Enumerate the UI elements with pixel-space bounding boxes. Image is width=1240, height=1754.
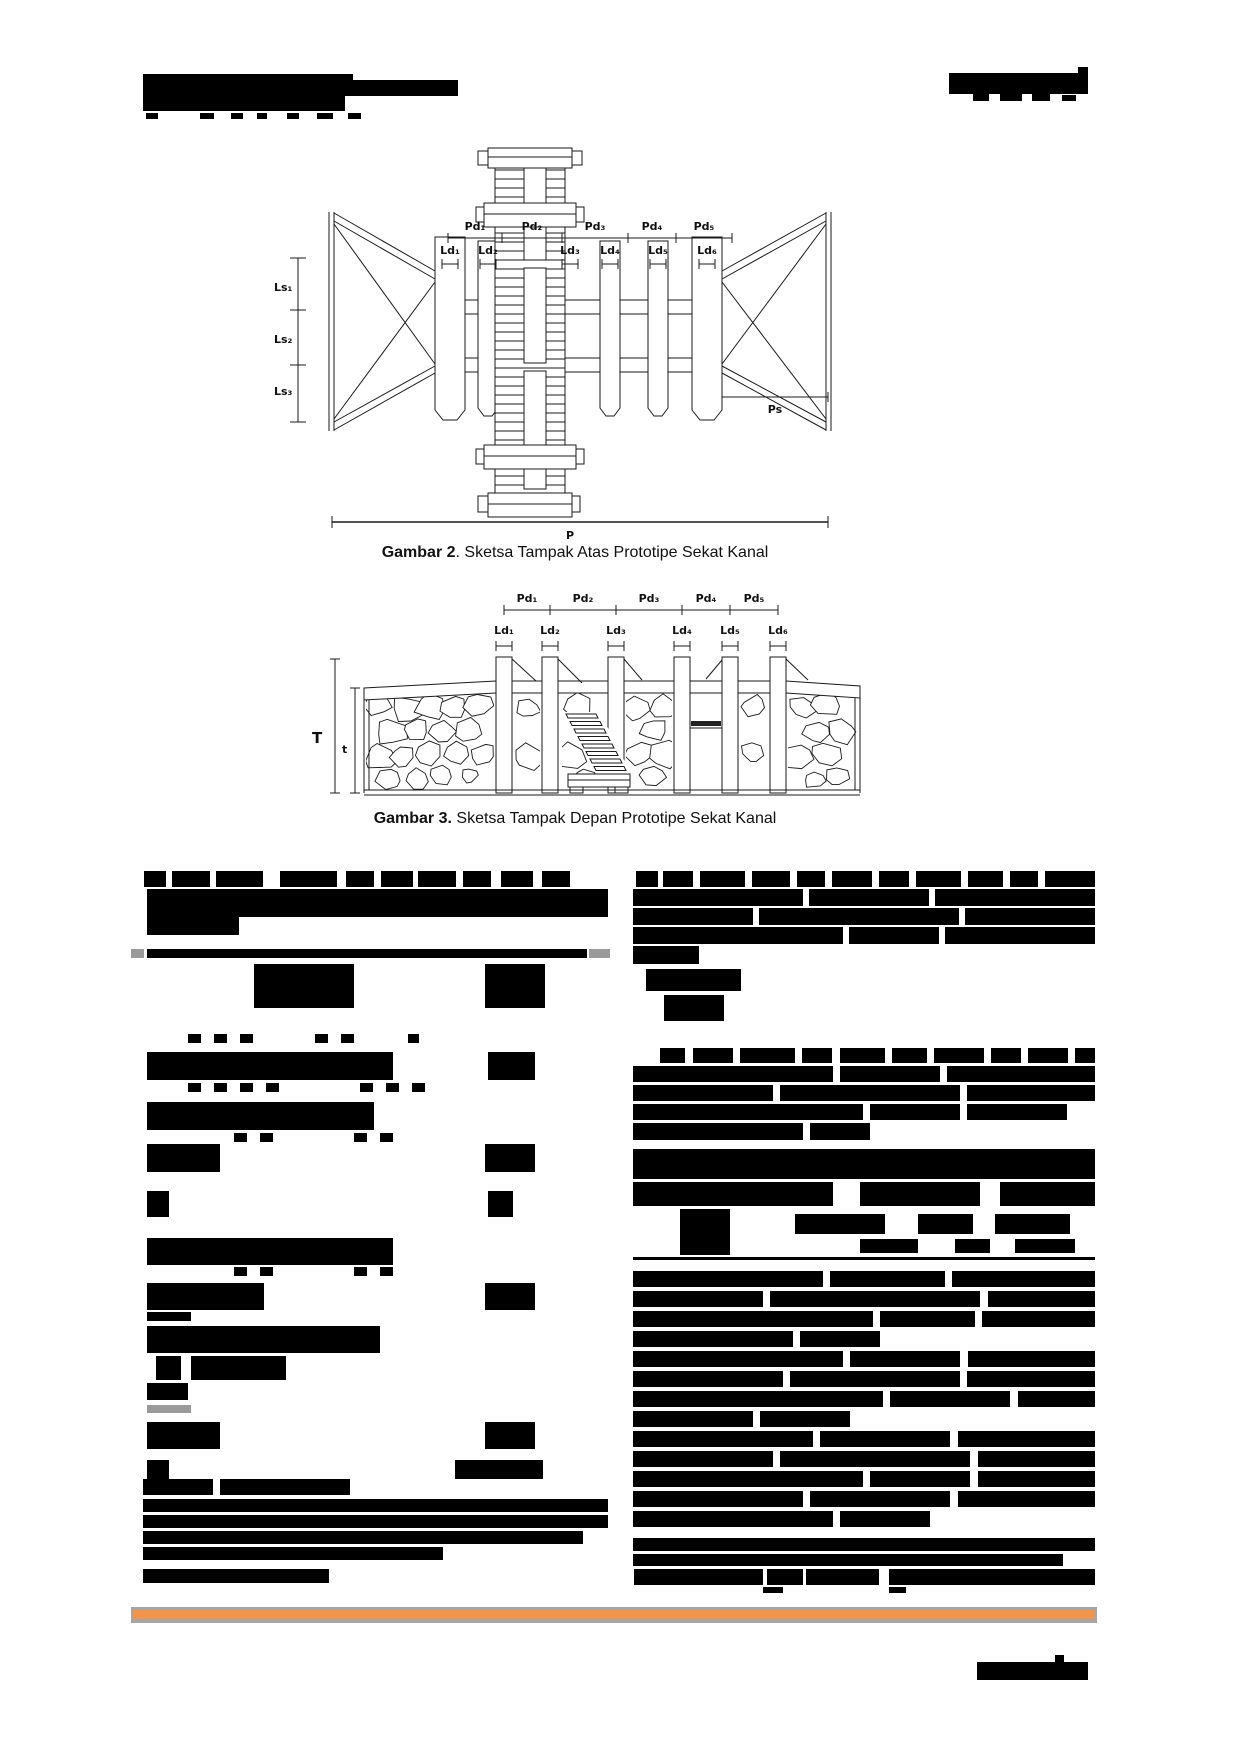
fig1-label-pd1: Pd₁ bbox=[465, 220, 486, 233]
stone bbox=[802, 722, 830, 742]
figure-front-view-sketch: T t Pd₁ Pd₂ Pd₃ Pd₄ Pd₅ Ld₁ Ld₂ Ld₃ Ld₄ … bbox=[270, 580, 870, 808]
redacted-text-bar bbox=[346, 871, 374, 887]
redacted-text-bar bbox=[700, 871, 745, 887]
stone bbox=[415, 741, 440, 766]
stone bbox=[639, 721, 665, 741]
stone bbox=[812, 743, 842, 766]
redacted-text-bar bbox=[354, 1133, 367, 1142]
redacted-text-bar bbox=[455, 1460, 543, 1479]
redacted-text-bar bbox=[967, 1104, 1067, 1120]
sketch-shape bbox=[570, 722, 602, 726]
redacted-text-bar bbox=[234, 1133, 247, 1142]
redacted-text-bar bbox=[1078, 67, 1088, 75]
redacted-text-bar bbox=[1062, 95, 1076, 101]
redacted-text-bar bbox=[589, 949, 610, 958]
redacted-text-bar bbox=[693, 1048, 733, 1063]
stone-panel bbox=[623, 694, 682, 786]
document-page: Ls₁ Ls₂ Ls₃ Pd₁ Pd₂ Pd₃ Pd₄ Pd₅ Ld₁ Ld₂ … bbox=[0, 0, 1240, 1754]
fig2-pd-dimension: Pd₁ Pd₂ Pd₃ Pd₄ Pd₅ bbox=[504, 592, 778, 615]
stone bbox=[428, 720, 457, 742]
redacted-text-bar bbox=[485, 1144, 535, 1172]
stone bbox=[623, 696, 650, 721]
redacted-text-bar bbox=[759, 908, 959, 925]
redacted-text-bar bbox=[955, 1239, 990, 1253]
redacted-text-bar bbox=[663, 871, 693, 887]
sketch-shape bbox=[578, 737, 610, 741]
stone-panel bbox=[741, 695, 765, 762]
redacted-text-bar bbox=[760, 1411, 850, 1427]
redacted-text-bar bbox=[879, 871, 909, 887]
redacted-text-bar bbox=[780, 1085, 960, 1101]
redacted-text-bar bbox=[770, 1291, 980, 1307]
redacted-text-bar bbox=[967, 1085, 1095, 1101]
fig1-label-ld5: Ld₅ bbox=[648, 244, 668, 257]
redacted-text-bar bbox=[488, 1191, 513, 1217]
redacted-text-bar bbox=[633, 889, 803, 906]
redacted-text-bar bbox=[806, 1569, 879, 1585]
fig1-label-ls3: Ls₃ bbox=[274, 385, 293, 398]
redacted-text-bar bbox=[341, 1034, 354, 1043]
redacted-text-bar bbox=[240, 1083, 253, 1092]
redacted-text-bar bbox=[849, 927, 939, 944]
sketch-shape bbox=[586, 752, 618, 756]
stone bbox=[829, 719, 856, 745]
redacted-text-bar bbox=[216, 871, 263, 887]
redacted-text-bar bbox=[978, 1471, 1095, 1487]
redacted-text-bar bbox=[880, 1311, 975, 1327]
redacted-text-bar bbox=[143, 1547, 443, 1560]
redacted-text-bar bbox=[147, 1326, 380, 1353]
redacted-text-bar bbox=[220, 1479, 350, 1495]
redacted-text-bar bbox=[408, 1034, 419, 1043]
stone-panel bbox=[364, 692, 494, 789]
stone bbox=[430, 765, 451, 785]
fig1-ls-dimension: Ls₁ Ls₂ Ls₃ bbox=[274, 258, 306, 422]
sketch-shape bbox=[574, 729, 606, 733]
redacted-text-bar bbox=[214, 1083, 227, 1092]
redacted-text-bar bbox=[977, 1662, 1088, 1680]
redacted-text-bar bbox=[254, 964, 354, 1008]
figure-3-caption: Gambar 3. Sketsa Tampak Depan Prototipe … bbox=[130, 810, 1020, 828]
redacted-text-bar bbox=[740, 1048, 795, 1063]
redacted-text-bar bbox=[840, 1066, 940, 1082]
fig2-label-ld3: Ld₃ bbox=[606, 624, 626, 637]
redacted-text-bar bbox=[348, 113, 361, 119]
redacted-text-bar bbox=[143, 1531, 583, 1544]
redacted-text-bar bbox=[147, 1312, 191, 1321]
redacted-text-bar bbox=[870, 1104, 960, 1120]
stone bbox=[741, 695, 765, 717]
sketch-shape bbox=[582, 744, 614, 748]
redacted-text-bar bbox=[633, 1471, 863, 1487]
redacted-text-bar bbox=[752, 871, 790, 887]
redacted-text-bar bbox=[790, 1371, 960, 1387]
redacted-text-bar bbox=[860, 1239, 918, 1253]
redacted-text-bar bbox=[918, 1214, 973, 1234]
redacted-text-bar bbox=[188, 1034, 201, 1043]
redacted-text-bar bbox=[1018, 1391, 1095, 1407]
stone bbox=[444, 741, 469, 764]
redacted-text-bar bbox=[147, 1052, 393, 1080]
fig2-label-pd3: Pd₃ bbox=[639, 592, 660, 605]
fig1-label-ld4: Ld₄ bbox=[600, 244, 620, 257]
redacted-text-bar bbox=[978, 1451, 1095, 1467]
figure-3-caption-number: Gambar 3. bbox=[374, 810, 452, 827]
fig1-label-pd4: Pd₄ bbox=[642, 220, 663, 233]
fig1-left-wing bbox=[329, 212, 435, 431]
redacted-text-bar bbox=[840, 1048, 885, 1063]
redacted-text-bar bbox=[860, 1182, 980, 1206]
redacted-text-bar bbox=[214, 1034, 227, 1043]
redacted-text-bar bbox=[802, 1048, 832, 1063]
redacted-text-bar bbox=[266, 1083, 279, 1092]
fig2-label-T: T bbox=[312, 729, 323, 747]
redacted-text-bar bbox=[1075, 1048, 1095, 1063]
redacted-text-bar bbox=[257, 113, 267, 119]
fig1-label-ld1: Ld₁ bbox=[440, 244, 460, 257]
redacted-text-bar bbox=[967, 1371, 1095, 1387]
stone bbox=[806, 772, 827, 787]
fig2-label-t: t bbox=[342, 743, 347, 756]
redacted-text-bar bbox=[485, 964, 545, 1008]
redacted-text-bar bbox=[633, 1257, 1095, 1260]
fig2-t-dimensions: T t bbox=[312, 659, 360, 793]
redacted-text-bar bbox=[234, 1267, 247, 1276]
redacted-text-bar bbox=[412, 1083, 425, 1092]
redacted-text-bar bbox=[988, 1291, 1095, 1307]
redacted-text-bar bbox=[636, 871, 658, 887]
fig2-label-ld2: Ld₂ bbox=[540, 624, 560, 637]
redacted-text-bar bbox=[147, 1238, 393, 1265]
redacted-text-bar bbox=[380, 1133, 393, 1142]
fig1-label-pd2: Pd₂ bbox=[522, 220, 543, 233]
redacted-text-bar bbox=[260, 1267, 273, 1276]
redacted-text-bar bbox=[664, 995, 724, 1021]
redacted-text-bar bbox=[810, 1491, 950, 1507]
redacted-text-bar bbox=[680, 1209, 730, 1255]
fig2-label-ld1: Ld₁ bbox=[494, 624, 514, 637]
redacted-text-bar bbox=[380, 1267, 393, 1276]
redacted-text-bar bbox=[633, 1391, 883, 1407]
fig1-p-dimension: P bbox=[332, 516, 828, 542]
redacted-text-bar bbox=[935, 889, 1095, 906]
redacted-text-bar bbox=[889, 1569, 1095, 1585]
redacted-text-bar bbox=[945, 927, 1095, 944]
redacted-text-bar bbox=[633, 1123, 803, 1140]
redacted-text-bar bbox=[763, 1587, 783, 1593]
fig2-label-pd4: Pd₄ bbox=[696, 592, 717, 605]
redacted-text-bar bbox=[418, 871, 456, 887]
stone bbox=[440, 696, 465, 717]
redacted-text-bar bbox=[381, 871, 413, 887]
stone bbox=[557, 742, 587, 769]
redacted-text-bar bbox=[780, 1451, 970, 1467]
fig1-label-ls2: Ls₂ bbox=[274, 333, 293, 346]
redacted-text-bar bbox=[188, 1083, 201, 1092]
stone bbox=[471, 744, 493, 765]
redacted-text-bar bbox=[633, 1511, 833, 1527]
redacted-text-bar bbox=[147, 1405, 191, 1413]
stone bbox=[784, 745, 814, 769]
redacted-text-bar bbox=[633, 927, 843, 944]
figure-2-caption: Gambar 2. Sketsa Tampak Atas Prototipe S… bbox=[130, 544, 1020, 562]
redacted-text-bar bbox=[633, 1085, 773, 1101]
redacted-text-bar bbox=[143, 93, 345, 111]
redacted-text-bar bbox=[147, 1422, 220, 1449]
stone-panel bbox=[516, 699, 544, 770]
redacted-text-bar bbox=[1010, 871, 1038, 887]
figure-2-caption-text: . Sketsa Tampak Atas Prototipe Sekat Kan… bbox=[456, 544, 769, 561]
redacted-text-bar bbox=[633, 1371, 783, 1387]
stone bbox=[404, 719, 426, 740]
redacted-text-bar bbox=[485, 1283, 535, 1310]
redacted-text-bar bbox=[354, 1267, 367, 1276]
footer-rule-orange bbox=[133, 1610, 1095, 1619]
stone bbox=[456, 717, 482, 741]
fig1-label-ls1: Ls₁ bbox=[274, 281, 293, 294]
redacted-text-bar bbox=[147, 1460, 169, 1479]
stone bbox=[742, 743, 764, 762]
redacted-text-bar bbox=[952, 1271, 1095, 1287]
redacted-text-bar bbox=[1032, 94, 1050, 101]
redacted-text-bar bbox=[1028, 1048, 1068, 1063]
redacted-text-bar bbox=[633, 1291, 763, 1307]
fig1-label-ld6: Ld₆ bbox=[697, 244, 717, 257]
redacted-text-bar bbox=[317, 113, 333, 119]
redacted-text-bar bbox=[143, 1569, 329, 1583]
redacted-text-bar bbox=[156, 1356, 181, 1380]
fig2-ld-dimension: Ld₁ Ld₂ Ld₃ Ld₄ Ld₅ Ld₆ bbox=[494, 624, 788, 651]
redacted-text-bar bbox=[965, 908, 1095, 925]
fig2-label-pd5: Pd₅ bbox=[744, 592, 765, 605]
redacted-text-bar bbox=[968, 871, 1003, 887]
redacted-text-bar bbox=[260, 1133, 273, 1142]
redacted-text-bar bbox=[810, 1123, 870, 1140]
redacted-text-bar bbox=[386, 1083, 399, 1092]
fig2-label-pd1: Pd₁ bbox=[517, 592, 538, 605]
redacted-text-bar bbox=[147, 1144, 220, 1172]
fig2-label-ld4: Ld₄ bbox=[672, 624, 692, 637]
fig2-label-pd2: Pd₂ bbox=[573, 592, 594, 605]
redacted-text-bar bbox=[360, 1083, 373, 1092]
redacted-text-bar bbox=[800, 1331, 880, 1347]
redacted-text-bar bbox=[633, 1491, 803, 1507]
redacted-text-bar bbox=[892, 1048, 927, 1063]
redacted-text-bar bbox=[991, 1048, 1021, 1063]
fig1-label-ld2: Ld₂ bbox=[478, 244, 498, 257]
redacted-text-bar bbox=[144, 871, 166, 887]
stone bbox=[516, 743, 544, 771]
sketch-shape bbox=[590, 759, 622, 763]
fig2-label-ld5: Ld₅ bbox=[720, 624, 740, 637]
stone bbox=[827, 768, 850, 785]
redacted-text-bar bbox=[633, 1311, 873, 1327]
redacted-text-bar bbox=[850, 1351, 960, 1367]
redacted-text-bar bbox=[634, 1569, 763, 1585]
redacted-text-bar bbox=[1045, 871, 1095, 887]
redacted-text-bar bbox=[240, 1034, 253, 1043]
redacted-text-bar bbox=[485, 1422, 535, 1449]
redacted-text-bar bbox=[131, 949, 144, 958]
redacted-text-bar bbox=[191, 1356, 286, 1380]
redacted-text-bar bbox=[147, 1383, 188, 1400]
redacted-text-bar bbox=[147, 917, 239, 935]
redacted-text-bar bbox=[1000, 94, 1022, 101]
redacted-text-bar bbox=[147, 949, 587, 958]
redacted-text-bar bbox=[231, 113, 243, 119]
redacted-text-bar bbox=[1015, 1239, 1075, 1253]
redacted-text-bar bbox=[832, 871, 872, 887]
redacted-text-bar bbox=[830, 1271, 945, 1287]
fig1-label-p: P bbox=[566, 529, 574, 542]
redacted-text-bar bbox=[660, 1048, 685, 1063]
figure-3-caption-text: Sketsa Tampak Depan Prototipe Sekat Kana… bbox=[452, 810, 776, 827]
figure-top-view-sketch: Ls₁ Ls₂ Ls₃ Pd₁ Pd₂ Pd₃ Pd₄ Pd₅ Ld₁ Ld₂ … bbox=[270, 140, 840, 545]
stone bbox=[379, 719, 408, 744]
redacted-text-bar bbox=[147, 889, 608, 917]
redacted-text-bar bbox=[1055, 1655, 1064, 1663]
redacted-text-bar bbox=[633, 1271, 823, 1287]
redacted-text-bar bbox=[949, 73, 1088, 94]
stone-panel bbox=[784, 692, 856, 787]
redacted-text-bar bbox=[820, 1431, 950, 1447]
redacted-text-bar bbox=[633, 1149, 1095, 1179]
fig1-label-pd3: Pd₃ bbox=[585, 220, 606, 233]
footer-rule bbox=[131, 1607, 1097, 1623]
sketch-shape bbox=[594, 767, 626, 771]
redacted-text-bar bbox=[633, 1451, 773, 1467]
fig1-ps-dimension: Ps bbox=[722, 392, 828, 416]
redacted-text-bar bbox=[172, 871, 210, 887]
redacted-text-bar bbox=[280, 871, 337, 887]
redacted-text-bar bbox=[143, 1479, 213, 1495]
redacted-text-bar bbox=[646, 969, 741, 991]
redacted-text-bar bbox=[200, 113, 214, 119]
redacted-text-bar bbox=[315, 1034, 328, 1043]
redacted-text-bar bbox=[947, 1066, 1095, 1082]
redacted-text-bar bbox=[982, 1311, 1095, 1327]
redacted-text-bar bbox=[143, 1499, 608, 1512]
redacted-text-bar bbox=[633, 1104, 863, 1120]
stone bbox=[624, 742, 651, 765]
fig2-spillway-gap bbox=[690, 693, 722, 790]
redacted-text-bar bbox=[488, 1052, 535, 1080]
redacted-text-bar bbox=[633, 1331, 793, 1347]
redacted-text-bar bbox=[795, 1214, 885, 1234]
redacted-text-bar bbox=[973, 94, 989, 101]
redacted-text-bar bbox=[968, 1351, 1095, 1367]
sketch-shape bbox=[566, 714, 598, 718]
redacted-text-bar bbox=[143, 1515, 608, 1528]
redacted-text-bar bbox=[767, 1569, 803, 1585]
redacted-text-bar bbox=[633, 1351, 843, 1367]
redacted-text-bar bbox=[934, 1048, 984, 1063]
redacted-text-bar bbox=[995, 1214, 1070, 1234]
fig1-label-pd5: Pd₅ bbox=[694, 220, 715, 233]
fig1-label-ps: Ps bbox=[768, 403, 783, 416]
redacted-text-bar bbox=[633, 1538, 1095, 1551]
stone bbox=[463, 695, 494, 717]
redacted-text-bar bbox=[147, 1191, 169, 1217]
redacted-text-bar bbox=[633, 908, 753, 925]
redacted-text-bar bbox=[958, 1431, 1095, 1447]
redacted-text-bar bbox=[958, 1491, 1095, 1507]
redacted-text-bar bbox=[797, 871, 825, 887]
stone bbox=[517, 699, 541, 716]
redacted-text-bar bbox=[463, 871, 491, 887]
fig1-label-ld3: Ld₃ bbox=[560, 244, 580, 257]
redacted-text-bar bbox=[809, 889, 929, 906]
stone bbox=[406, 768, 428, 789]
redacted-text-bar bbox=[633, 1554, 1063, 1566]
redacted-text-bar bbox=[633, 1431, 813, 1447]
redacted-text-bar bbox=[870, 1471, 970, 1487]
stone bbox=[639, 766, 666, 785]
figure-2-caption-number: Gambar 2 bbox=[382, 544, 456, 561]
redacted-text-bar bbox=[633, 1066, 833, 1082]
redacted-text-bar bbox=[840, 1511, 930, 1527]
redacted-text-bar bbox=[633, 946, 699, 964]
redacted-text-bar bbox=[147, 1102, 374, 1130]
redacted-text-bar bbox=[890, 1391, 1010, 1407]
redacted-text-bar bbox=[501, 871, 533, 887]
fig2-label-ld6: Ld₆ bbox=[768, 624, 788, 637]
redacted-text-bar bbox=[146, 113, 158, 119]
stone bbox=[462, 769, 478, 783]
redacted-text-bar bbox=[1000, 1182, 1095, 1206]
redacted-text-bar bbox=[542, 871, 570, 887]
redacted-text-bar bbox=[287, 113, 299, 119]
redacted-text-bar bbox=[633, 1182, 833, 1206]
fig1-right-wing bbox=[722, 212, 831, 431]
redacted-text-bar bbox=[916, 871, 961, 887]
redacted-text-bar bbox=[633, 1411, 753, 1427]
redacted-text-bar bbox=[889, 1587, 906, 1593]
redacted-text-bar bbox=[147, 1283, 264, 1310]
stone bbox=[375, 769, 400, 789]
